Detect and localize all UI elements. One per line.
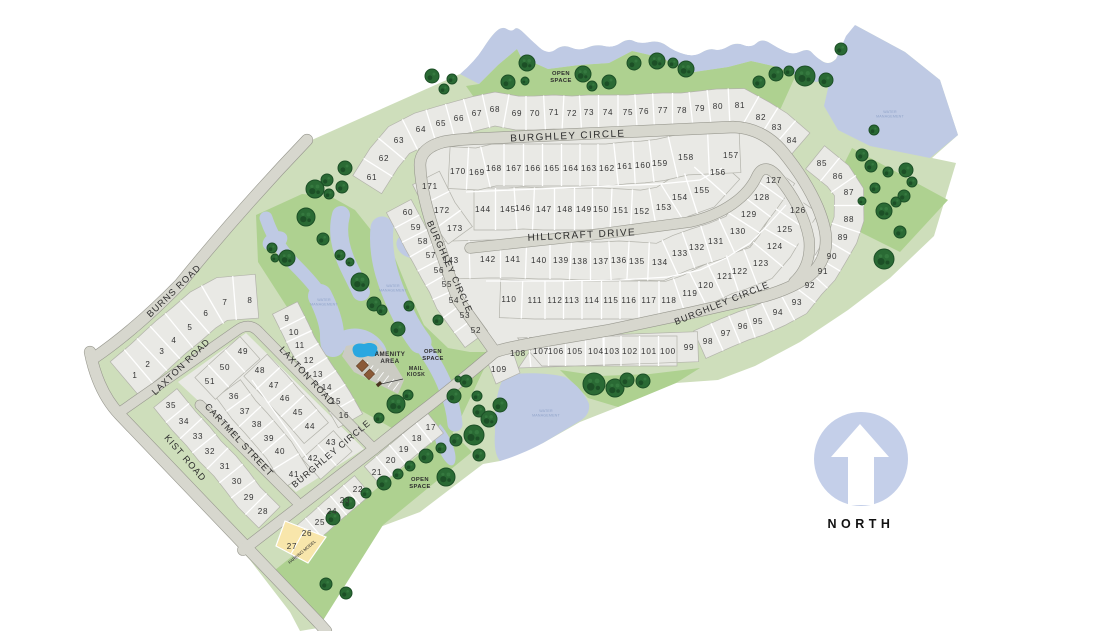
svg-text:93: 93 [792, 298, 803, 307]
svg-text:NORTH: NORTH [828, 517, 895, 531]
svg-text:107: 107 [533, 347, 549, 356]
svg-text:145: 145 [500, 205, 516, 214]
svg-text:95: 95 [753, 317, 764, 326]
svg-text:MANAGEMENT: MANAGEMENT [310, 303, 338, 307]
svg-text:98: 98 [703, 337, 714, 346]
svg-text:113: 113 [564, 296, 579, 305]
svg-text:82: 82 [756, 113, 767, 122]
svg-text:44: 44 [305, 422, 316, 431]
svg-text:172: 172 [434, 206, 450, 215]
svg-text:159: 159 [652, 159, 668, 168]
svg-text:54: 54 [449, 296, 460, 305]
svg-text:81: 81 [735, 101, 746, 110]
svg-text:MAIL: MAIL [409, 366, 424, 372]
svg-text:11: 11 [295, 341, 305, 350]
svg-text:75: 75 [623, 108, 634, 117]
svg-text:125: 125 [777, 225, 793, 234]
svg-text:65: 65 [436, 119, 447, 128]
svg-text:64: 64 [416, 125, 427, 134]
svg-text:23: 23 [340, 496, 351, 505]
svg-text:77: 77 [658, 106, 669, 115]
svg-text:79: 79 [695, 104, 706, 113]
svg-text:138: 138 [572, 257, 588, 266]
svg-text:36: 36 [229, 392, 240, 401]
svg-text:111: 111 [528, 296, 543, 305]
svg-text:72: 72 [567, 109, 578, 118]
svg-text:28: 28 [258, 507, 269, 516]
svg-text:26: 26 [302, 529, 313, 538]
svg-text:61: 61 [367, 173, 378, 182]
svg-text:7: 7 [222, 298, 227, 307]
svg-text:70: 70 [530, 109, 541, 118]
svg-text:SPACE: SPACE [422, 356, 444, 362]
svg-text:105: 105 [567, 347, 583, 356]
svg-text:83: 83 [772, 123, 783, 132]
svg-text:WATER: WATER [883, 110, 897, 114]
svg-text:2: 2 [145, 360, 150, 369]
svg-text:168: 168 [486, 164, 502, 173]
svg-text:115: 115 [603, 296, 618, 305]
svg-text:87: 87 [844, 188, 855, 197]
svg-text:157: 157 [723, 151, 739, 160]
svg-text:16: 16 [339, 411, 350, 420]
svg-text:40: 40 [275, 447, 286, 456]
svg-text:45: 45 [293, 408, 304, 417]
svg-text:10: 10 [289, 328, 300, 337]
svg-text:5: 5 [187, 323, 192, 332]
svg-text:AREA: AREA [380, 358, 399, 365]
svg-text:12: 12 [304, 356, 315, 365]
svg-text:94: 94 [773, 308, 784, 317]
svg-text:19: 19 [399, 445, 410, 454]
svg-text:OPEN: OPEN [424, 349, 442, 355]
svg-text:162: 162 [599, 164, 615, 173]
svg-text:66: 66 [454, 114, 465, 123]
svg-text:29: 29 [244, 493, 255, 502]
svg-text:154: 154 [672, 193, 688, 202]
svg-text:MANAGEMENT: MANAGEMENT [876, 115, 904, 119]
svg-text:17: 17 [426, 423, 437, 432]
svg-text:136: 136 [611, 256, 627, 265]
svg-text:114: 114 [584, 296, 599, 305]
svg-text:KIOSK: KIOSK [407, 372, 425, 378]
svg-text:104: 104 [588, 347, 604, 356]
svg-text:AMENITY: AMENITY [375, 351, 406, 358]
svg-text:152: 152 [634, 207, 650, 216]
svg-text:6: 6 [203, 309, 208, 318]
svg-text:58: 58 [418, 237, 429, 246]
svg-text:32: 32 [205, 447, 216, 456]
svg-text:160: 160 [635, 161, 651, 170]
svg-text:110: 110 [501, 295, 516, 304]
svg-text:103: 103 [604, 347, 620, 356]
svg-text:122: 122 [732, 267, 748, 276]
svg-text:51: 51 [205, 377, 216, 386]
svg-text:96: 96 [738, 322, 749, 331]
svg-text:106: 106 [548, 347, 564, 356]
svg-text:MANAGEMENT: MANAGEMENT [532, 414, 560, 418]
svg-text:25: 25 [315, 518, 326, 527]
svg-text:131: 131 [708, 237, 724, 246]
svg-text:37: 37 [240, 407, 251, 416]
svg-text:118: 118 [661, 296, 676, 305]
svg-text:158: 158 [678, 153, 694, 162]
svg-text:173: 173 [447, 224, 463, 233]
svg-text:101: 101 [641, 347, 657, 356]
svg-text:108: 108 [510, 349, 526, 358]
svg-text:3: 3 [159, 347, 164, 356]
svg-text:WATER: WATER [386, 284, 400, 288]
svg-text:86: 86 [833, 172, 844, 181]
svg-text:147: 147 [536, 205, 552, 214]
svg-text:124: 124 [767, 242, 783, 251]
svg-text:127: 127 [766, 176, 782, 185]
svg-text:144: 144 [475, 205, 491, 214]
svg-text:56: 56 [434, 266, 445, 275]
svg-text:130: 130 [730, 227, 746, 236]
svg-text:140: 140 [531, 256, 547, 265]
svg-text:165: 165 [544, 164, 560, 173]
svg-text:132: 132 [689, 243, 705, 252]
svg-text:OPEN: OPEN [552, 71, 570, 77]
svg-text:62: 62 [379, 154, 390, 163]
svg-text:116: 116 [621, 296, 636, 305]
svg-text:49: 49 [238, 347, 249, 356]
svg-text:24: 24 [327, 507, 338, 516]
svg-text:74: 74 [603, 108, 614, 117]
svg-text:30: 30 [232, 477, 243, 486]
svg-text:68: 68 [490, 105, 501, 114]
svg-text:60: 60 [403, 208, 414, 217]
svg-text:137: 137 [593, 257, 609, 266]
svg-text:88: 88 [844, 215, 855, 224]
svg-text:76: 76 [639, 107, 650, 116]
svg-text:33: 33 [193, 432, 204, 441]
svg-text:57: 57 [426, 251, 437, 260]
svg-text:22: 22 [353, 485, 364, 494]
svg-text:71: 71 [549, 108, 560, 117]
svg-text:123: 123 [753, 259, 769, 268]
svg-text:91: 91 [818, 267, 829, 276]
svg-text:100: 100 [660, 347, 676, 356]
svg-text:47: 47 [269, 381, 280, 390]
svg-text:63: 63 [394, 136, 405, 145]
svg-text:WATER: WATER [539, 409, 553, 413]
svg-text:148: 148 [557, 205, 573, 214]
svg-text:85: 85 [817, 159, 828, 168]
svg-text:90: 90 [827, 252, 838, 261]
svg-text:142: 142 [480, 255, 496, 264]
svg-text:21: 21 [372, 468, 383, 477]
svg-text:153: 153 [656, 203, 672, 212]
svg-text:55: 55 [442, 280, 453, 289]
svg-text:OPEN: OPEN [411, 477, 429, 483]
svg-text:MANAGEMENT: MANAGEMENT [379, 289, 407, 293]
svg-text:50: 50 [220, 363, 231, 372]
svg-text:27: 27 [287, 542, 298, 551]
svg-text:133: 133 [672, 249, 688, 258]
svg-text:48: 48 [255, 366, 266, 375]
svg-text:149: 149 [576, 205, 592, 214]
svg-text:121: 121 [717, 272, 733, 281]
svg-text:171: 171 [422, 182, 438, 191]
svg-text:167: 167 [506, 164, 522, 173]
svg-text:170: 170 [450, 167, 466, 176]
svg-text:SPACE: SPACE [409, 484, 431, 490]
svg-text:80: 80 [713, 102, 724, 111]
svg-text:135: 135 [629, 257, 645, 266]
svg-text:129: 129 [741, 210, 757, 219]
svg-text:78: 78 [677, 106, 688, 115]
svg-text:84: 84 [787, 136, 798, 145]
svg-text:8: 8 [247, 296, 252, 305]
svg-text:155: 155 [694, 186, 710, 195]
svg-text:39: 39 [264, 434, 275, 443]
svg-text:69: 69 [512, 109, 523, 118]
svg-text:164: 164 [563, 164, 579, 173]
svg-text:18: 18 [412, 434, 423, 443]
svg-text:112: 112 [547, 296, 562, 305]
svg-text:151: 151 [613, 206, 629, 215]
svg-text:119: 119 [682, 289, 697, 298]
svg-text:146: 146 [515, 204, 531, 213]
svg-text:102: 102 [622, 347, 638, 356]
svg-text:20: 20 [386, 456, 397, 465]
svg-text:166: 166 [525, 164, 541, 173]
svg-text:109: 109 [491, 365, 507, 374]
svg-text:161: 161 [617, 162, 633, 171]
svg-text:59: 59 [411, 223, 422, 232]
svg-text:134: 134 [652, 258, 668, 267]
svg-text:31: 31 [220, 462, 231, 471]
svg-text:89: 89 [838, 233, 849, 242]
svg-text:34: 34 [179, 417, 190, 426]
svg-text:92: 92 [805, 281, 816, 290]
svg-text:SPACE: SPACE [550, 78, 572, 84]
svg-text:1: 1 [132, 371, 137, 380]
svg-text:141: 141 [505, 255, 521, 264]
svg-text:99: 99 [684, 343, 695, 352]
svg-text:38: 38 [252, 420, 263, 429]
svg-text:35: 35 [166, 401, 177, 410]
svg-text:150: 150 [593, 205, 609, 214]
svg-text:9: 9 [284, 314, 289, 323]
svg-text:169: 169 [469, 168, 485, 177]
svg-text:97: 97 [721, 329, 732, 338]
svg-text:126: 126 [790, 206, 806, 215]
svg-text:156: 156 [710, 168, 726, 177]
svg-text:120: 120 [698, 281, 714, 290]
svg-text:163: 163 [581, 164, 597, 173]
svg-text:73: 73 [584, 108, 595, 117]
svg-text:117: 117 [641, 296, 656, 305]
svg-text:67: 67 [472, 109, 483, 118]
svg-text:139: 139 [553, 256, 569, 265]
svg-text:WATER: WATER [317, 298, 331, 302]
svg-text:4: 4 [171, 336, 176, 345]
svg-text:46: 46 [280, 394, 291, 403]
svg-text:128: 128 [754, 193, 770, 202]
svg-text:52: 52 [471, 326, 482, 335]
